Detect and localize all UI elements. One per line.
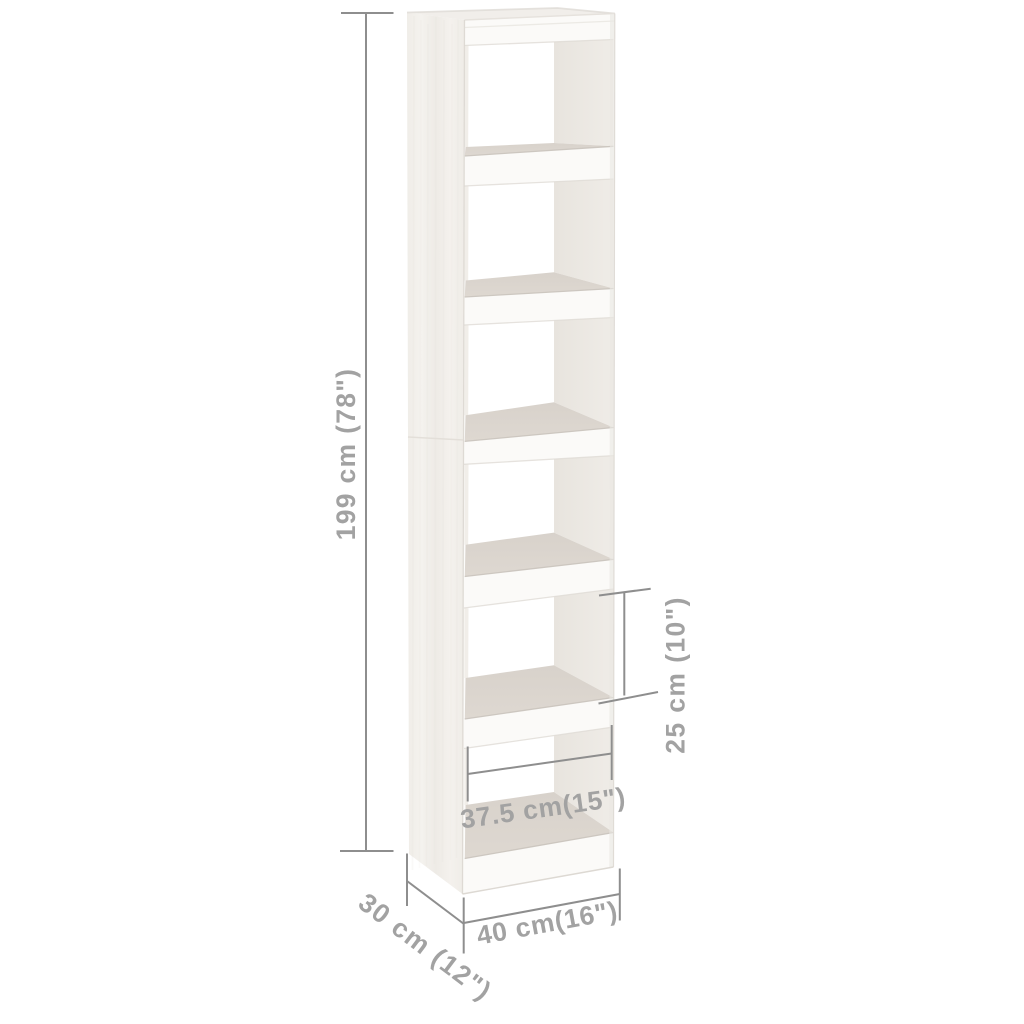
svg-text:199 cm (78"): 199 cm (78") bbox=[331, 368, 361, 541]
svg-text:25 cm (10"): 25 cm (10") bbox=[661, 596, 691, 754]
